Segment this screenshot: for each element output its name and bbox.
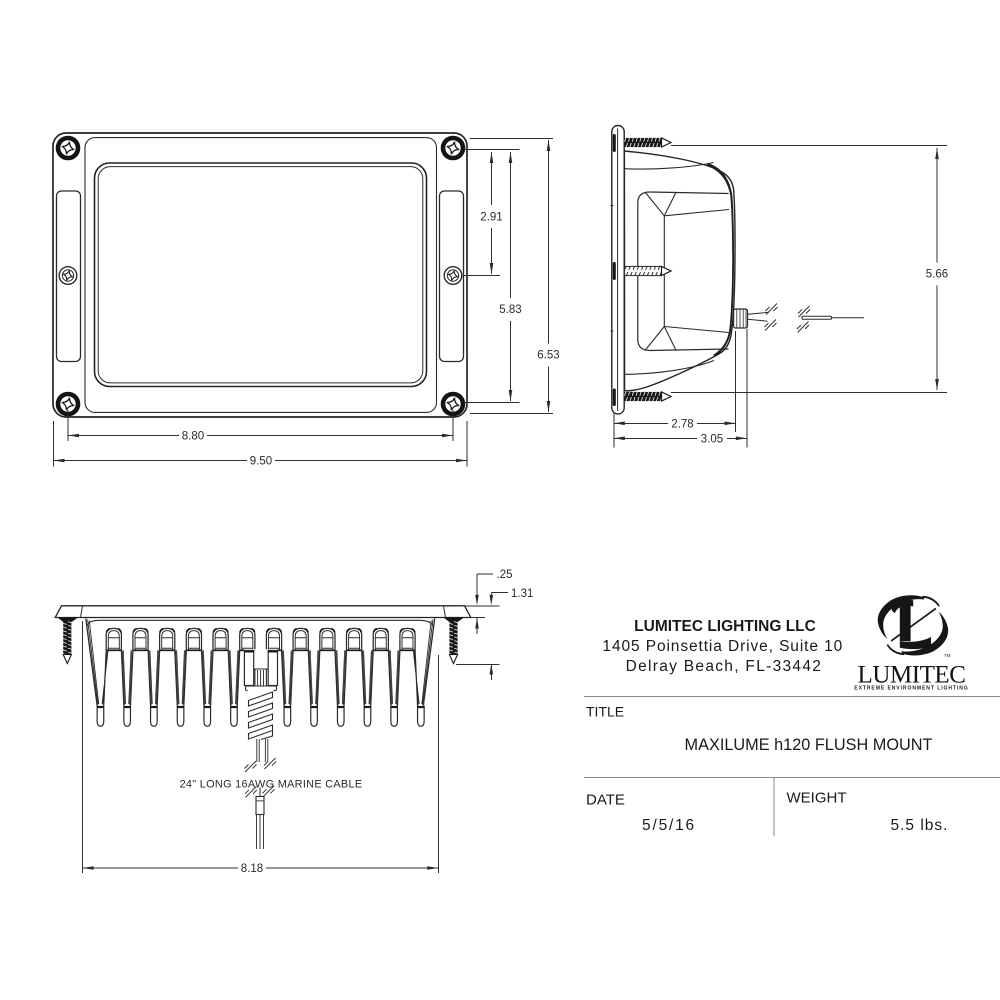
svg-text:MAXILUME h120 FLUSH MOUNT: MAXILUME h120 FLUSH MOUNT: [685, 736, 933, 754]
svg-text:6.53: 6.53: [537, 350, 559, 362]
svg-text:EXTREME ENVIRONMENT LIGHTING: EXTREME ENVIRONMENT LIGHTING: [854, 686, 968, 692]
svg-text:5.66: 5.66: [926, 269, 948, 281]
svg-text:LUMITEC LIGHTING LLC: LUMITEC LIGHTING LLC: [634, 618, 816, 635]
svg-text:TM: TM: [944, 653, 951, 658]
svg-text:DATE: DATE: [586, 792, 625, 809]
svg-text:Delray Beach, FL-33442: Delray Beach, FL-33442: [626, 658, 823, 675]
svg-text:5/5/16: 5/5/16: [642, 817, 696, 834]
svg-text:3.05: 3.05: [701, 433, 723, 445]
svg-text:1405 Poinsettia Drive, Suite 1: 1405 Poinsettia Drive, Suite 10: [602, 638, 843, 655]
svg-text:.25: .25: [497, 569, 513, 581]
svg-text:8.18: 8.18: [241, 863, 263, 875]
svg-text:5.5 lbs.: 5.5 lbs.: [891, 817, 949, 834]
svg-text:WEIGHT: WEIGHT: [787, 790, 847, 807]
svg-text:5.83: 5.83: [499, 304, 521, 316]
svg-text:8.80: 8.80: [182, 431, 204, 443]
svg-text:2.91: 2.91: [480, 212, 502, 224]
svg-text:1.31: 1.31: [511, 588, 533, 600]
svg-text:9.50: 9.50: [250, 456, 272, 468]
svg-text:TITLE: TITLE: [586, 704, 624, 720]
svg-text:LUMITEC: LUMITEC: [858, 662, 966, 689]
svg-text:2.78: 2.78: [671, 418, 693, 430]
